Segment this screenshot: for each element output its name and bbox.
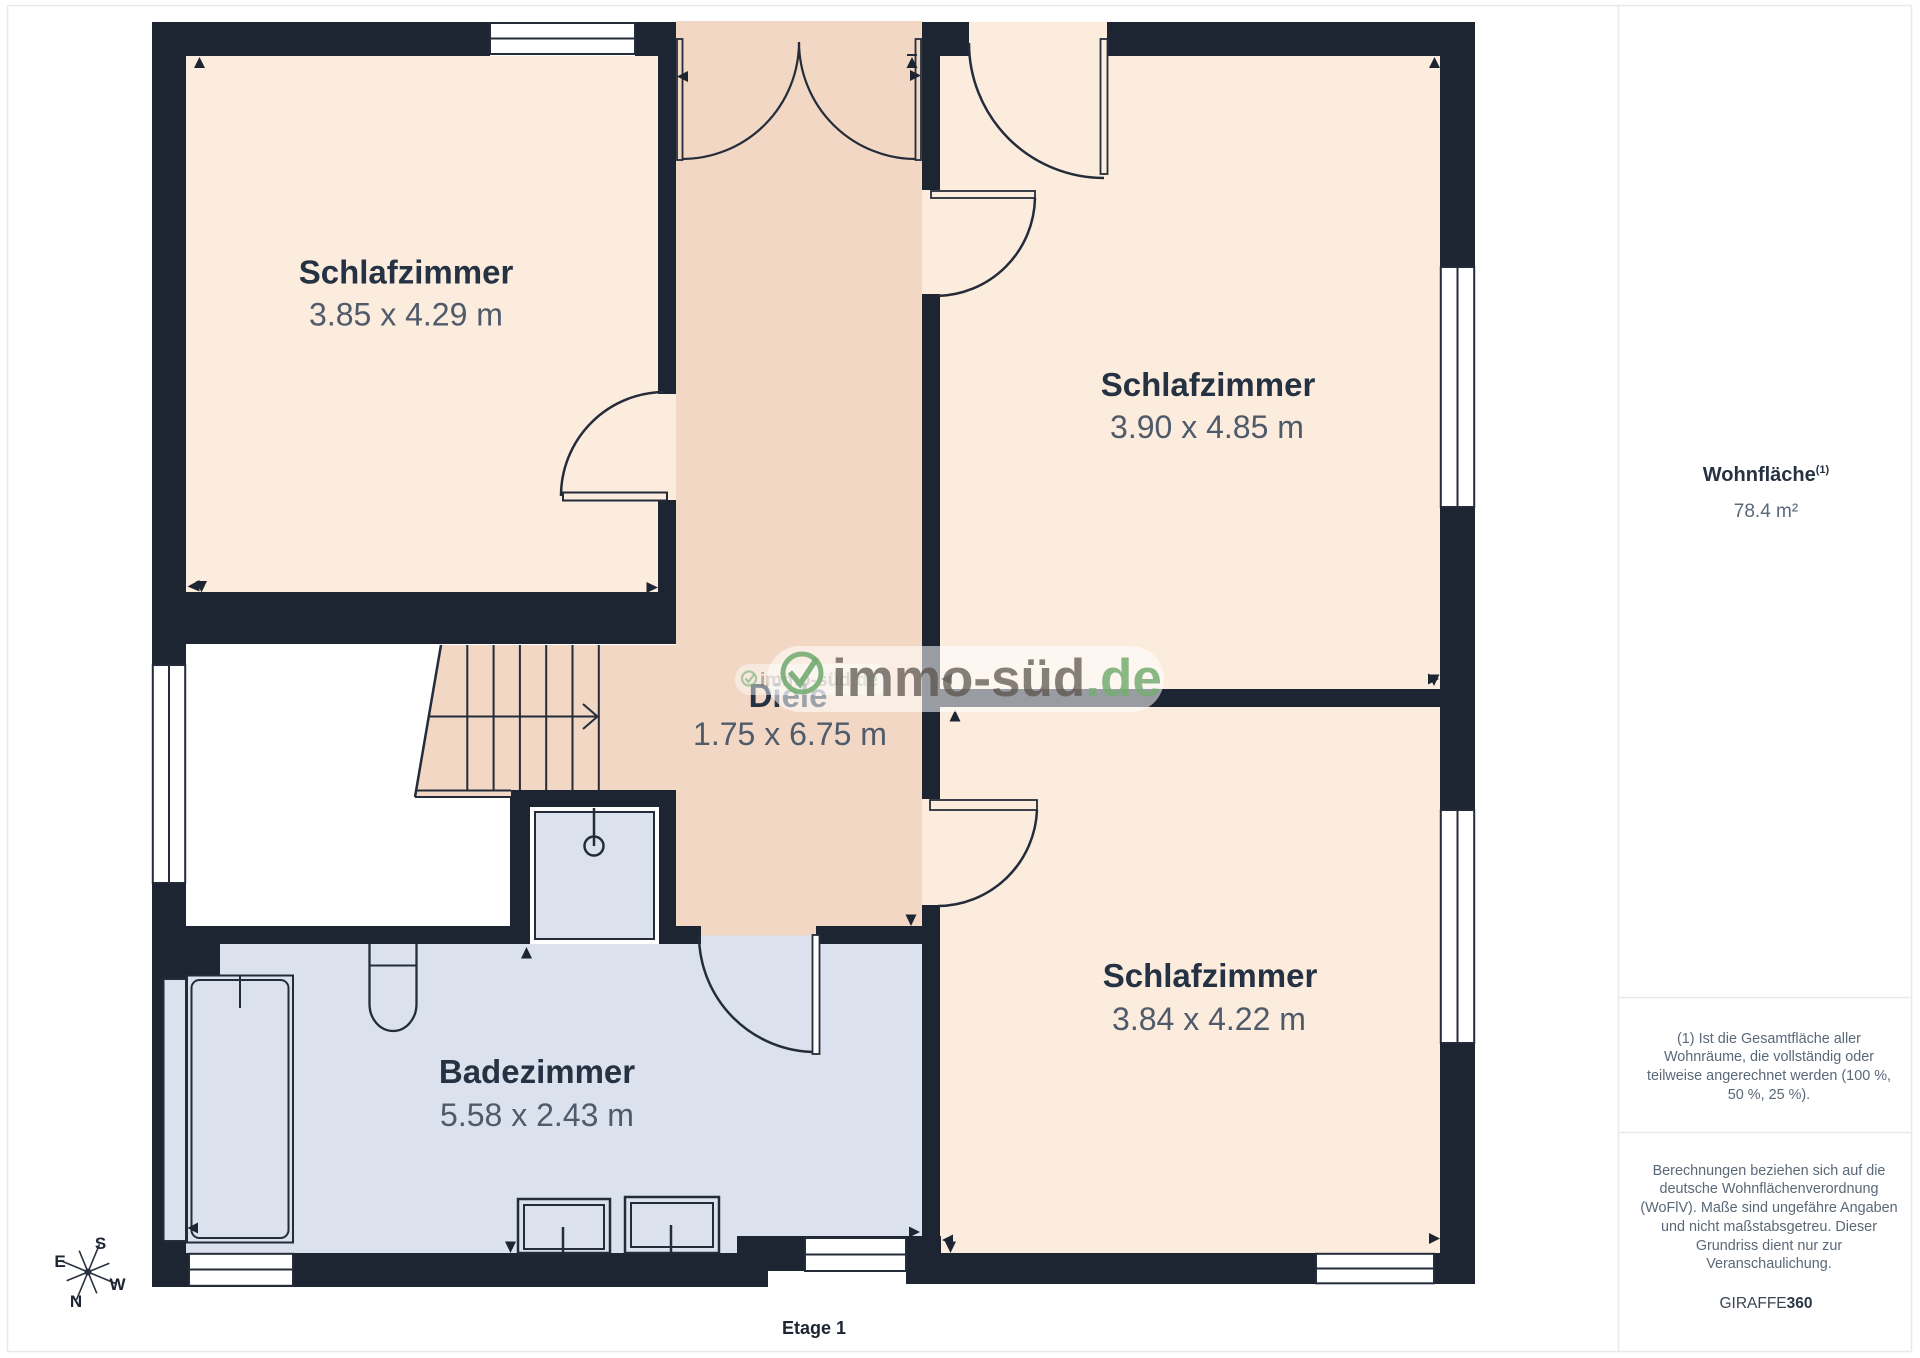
svg-text:Wohnfläche(1): Wohnfläche(1) bbox=[1703, 464, 1830, 486]
svg-text:Schlafzimmer: Schlafzimmer bbox=[1101, 366, 1316, 403]
svg-text:Badezimmer: Badezimmer bbox=[439, 1053, 635, 1090]
svg-text:(WoFlV). Maße sind ungefähre A: (WoFlV). Maße sind ungefähre Angaben bbox=[1640, 1200, 1897, 1216]
svg-text:N: N bbox=[70, 1292, 82, 1311]
svg-text:Schlafzimmer: Schlafzimmer bbox=[299, 254, 514, 291]
svg-text:50 %, 25 %).: 50 %, 25 %). bbox=[1728, 1087, 1810, 1103]
svg-text:3.85 x 4.29 m: 3.85 x 4.29 m bbox=[309, 297, 503, 333]
svg-text:3.90 x 4.85 m: 3.90 x 4.85 m bbox=[1110, 409, 1304, 445]
svg-text:Berechnungen beziehen sich auf: Berechnungen beziehen sich auf die bbox=[1653, 1163, 1886, 1179]
svg-text:und nicht maßstabsgetreu. Dies: und nicht maßstabsgetreu. Dieser bbox=[1661, 1219, 1877, 1235]
svg-text:(1) Ist die Gesamtfläche aller: (1) Ist die Gesamtfläche aller bbox=[1677, 1031, 1861, 1047]
svg-text:Veranschaulichung.: Veranschaulichung. bbox=[1706, 1256, 1832, 1272]
svg-text:E: E bbox=[54, 1252, 65, 1271]
svg-text:teilweise angerechnet werden (: teilweise angerechnet werden (100 %, bbox=[1647, 1068, 1891, 1084]
svg-text:Grundriss dient nur zur: Grundriss dient nur zur bbox=[1696, 1238, 1843, 1254]
svg-text:deutsche Wohnflächenverordnung: deutsche Wohnflächenverordnung bbox=[1660, 1181, 1879, 1197]
svg-text:3.84 x 4.22 m: 3.84 x 4.22 m bbox=[1112, 1001, 1306, 1037]
svg-text:Wohnräume, die vollständig ode: Wohnräume, die vollständig oder bbox=[1664, 1049, 1874, 1065]
svg-text:Schlafzimmer: Schlafzimmer bbox=[1103, 957, 1318, 994]
svg-text:immo-süd.de: immo-süd.de bbox=[832, 649, 1162, 708]
svg-text:78.4 m²: 78.4 m² bbox=[1734, 501, 1798, 522]
svg-text:S: S bbox=[95, 1234, 106, 1253]
svg-text:5.58 x 2.43 m: 5.58 x 2.43 m bbox=[440, 1097, 634, 1133]
svg-text:W: W bbox=[109, 1275, 126, 1294]
svg-text:GIRAFFE360: GIRAFFE360 bbox=[1719, 1295, 1812, 1312]
svg-text:1.75 x 6.75 m: 1.75 x 6.75 m bbox=[693, 716, 887, 752]
svg-text:Etage 1: Etage 1 bbox=[782, 1318, 846, 1338]
